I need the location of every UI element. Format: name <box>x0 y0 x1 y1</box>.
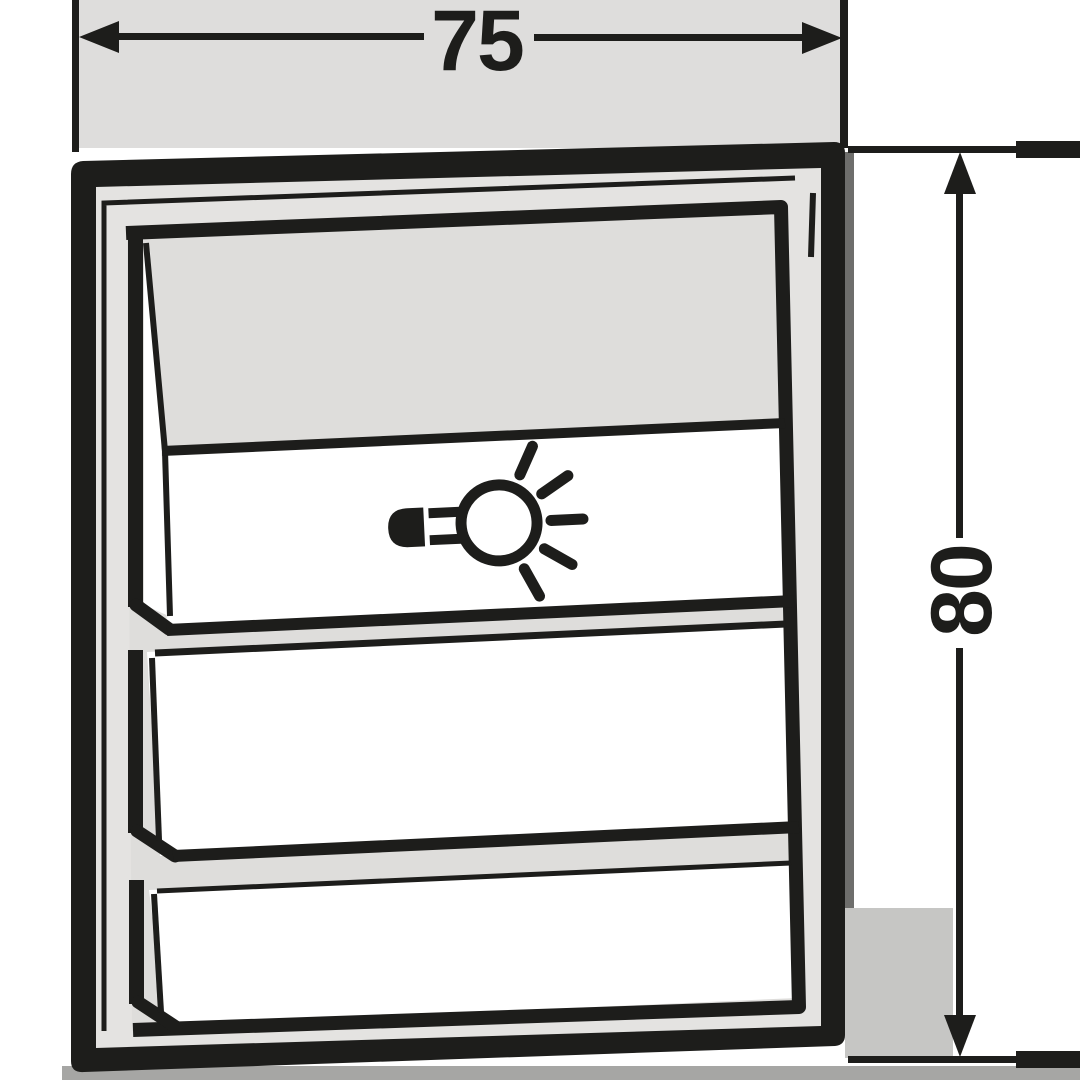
height-dimension-line-lower-segment <box>956 648 963 1018</box>
height-extension-bar-top <box>1016 141 1080 158</box>
width-extension-line-left <box>72 0 79 152</box>
arrowhead-up-icon <box>944 152 976 194</box>
opening-left-bar-middle <box>128 650 143 833</box>
width-dimension-line-left-segment <box>112 33 424 40</box>
height-dimension-label: 80 <box>914 545 1010 637</box>
diagram-canvas: 75 80 <box>0 0 1080 1080</box>
opening-left-bar-bottom <box>129 880 144 1004</box>
height-extension-line-top <box>848 146 1016 153</box>
width-extension-line-right <box>840 0 848 148</box>
device-side-shadow <box>845 152 854 910</box>
bulb-base <box>387 507 425 548</box>
faceplate-bevel-tick-right <box>811 193 813 257</box>
bulb-glass <box>459 483 538 562</box>
bottom-gray-strip <box>62 1066 1080 1080</box>
width-dimension-line-right-segment <box>534 34 806 41</box>
height-dimension-line-upper-segment <box>956 190 963 538</box>
height-extension-bar-bottom <box>1016 1051 1080 1068</box>
opening-left-bar-top <box>128 233 143 607</box>
width-dimension-label: 75 <box>431 0 523 89</box>
right-gray-patch <box>845 908 953 1058</box>
rocker-middle <box>147 622 799 856</box>
switch-dimension-diagram: 75 80 <box>0 0 1080 1080</box>
height-extension-line-bottom <box>848 1056 1016 1063</box>
switch-device <box>71 142 845 1072</box>
